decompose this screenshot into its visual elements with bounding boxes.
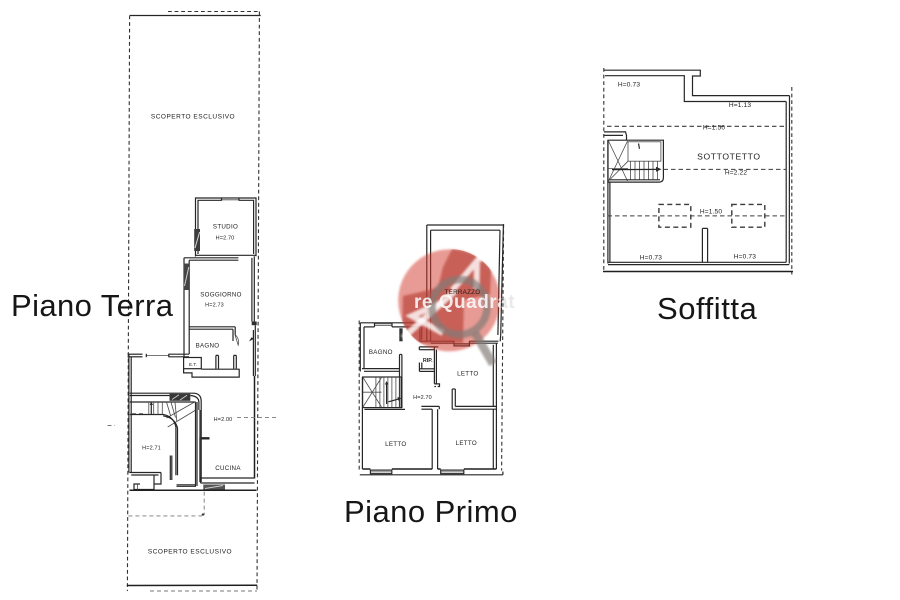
svg-text:H=2.22: H=2.22	[725, 170, 748, 177]
svg-text:E.T.: E.T.	[189, 362, 197, 367]
svg-text:H=2.73: H=2.73	[205, 303, 224, 309]
svg-text:H=0.73: H=0.73	[640, 255, 663, 262]
svg-text:SCOPERTO ESCLUSIVO: SCOPERTO ESCLUSIVO	[148, 549, 232, 556]
svg-text:Piano Terra: Piano Terra	[11, 288, 174, 323]
svg-text:LETTO: LETTO	[456, 440, 477, 447]
svg-text:H=2.70: H=2.70	[413, 395, 432, 401]
svg-text:Soffitta: Soffitta	[657, 291, 758, 326]
svg-text:BAGNO: BAGNO	[369, 349, 393, 356]
svg-text:H=2.70: H=2.70	[216, 236, 235, 242]
svg-text:STUDIO: STUDIO	[213, 224, 238, 231]
svg-text:H=2.71: H=2.71	[142, 446, 161, 452]
svg-text:H=1.13: H=1.13	[729, 102, 752, 109]
svg-text:SOGGIORNO: SOGGIORNO	[200, 292, 242, 299]
svg-text:H=1.50: H=1.50	[700, 209, 723, 216]
svg-text:LETTO: LETTO	[385, 441, 406, 448]
svg-text:SCOPERTO ESCLUSIVO: SCOPERTO ESCLUSIVO	[151, 114, 235, 121]
svg-text:BAGNO: BAGNO	[196, 343, 220, 350]
svg-text:RIP.: RIP.	[423, 358, 433, 364]
svg-text:CUCINA: CUCINA	[215, 465, 241, 472]
svg-text:H=0.73: H=0.73	[618, 82, 641, 89]
svg-text:Piano Primo: Piano Primo	[344, 494, 518, 529]
svg-text:H=1.50: H=1.50	[703, 125, 726, 132]
svg-text:SOTTOTETTO: SOTTOTETTO	[697, 152, 760, 162]
svg-text:H=0.73: H=0.73	[734, 254, 757, 261]
svg-text:LETTO: LETTO	[457, 371, 478, 378]
svg-text:H=2.00: H=2.00	[214, 417, 233, 423]
